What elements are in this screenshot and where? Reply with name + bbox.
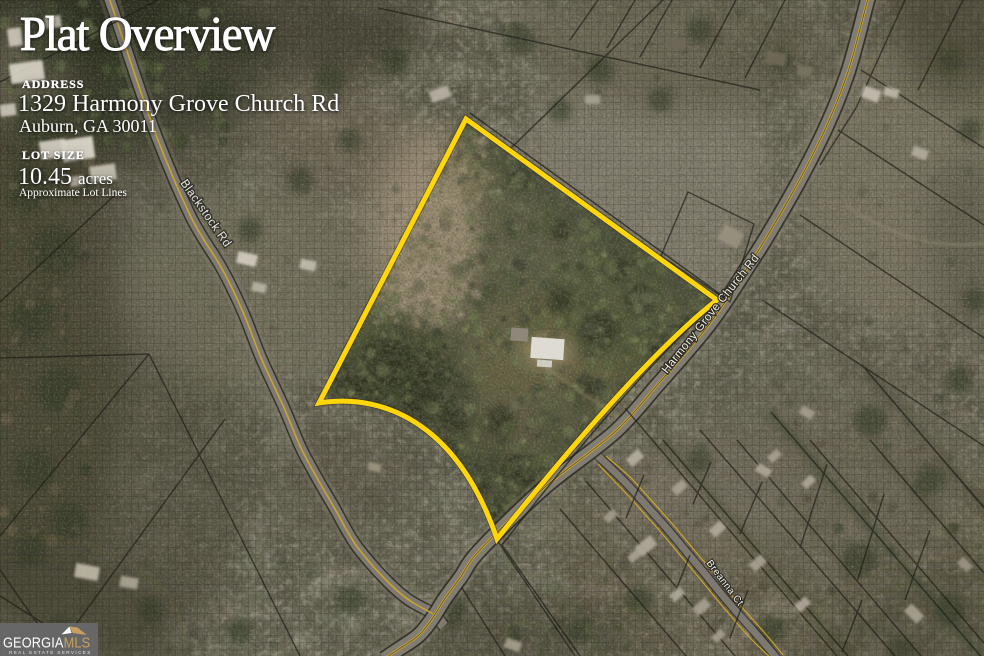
svg-text:GEORGIAMLS: GEORGIAMLS [3, 633, 90, 650]
svg-text:REAL ESTATE SERVICES: REAL ESTATE SERVICES [9, 650, 92, 655]
